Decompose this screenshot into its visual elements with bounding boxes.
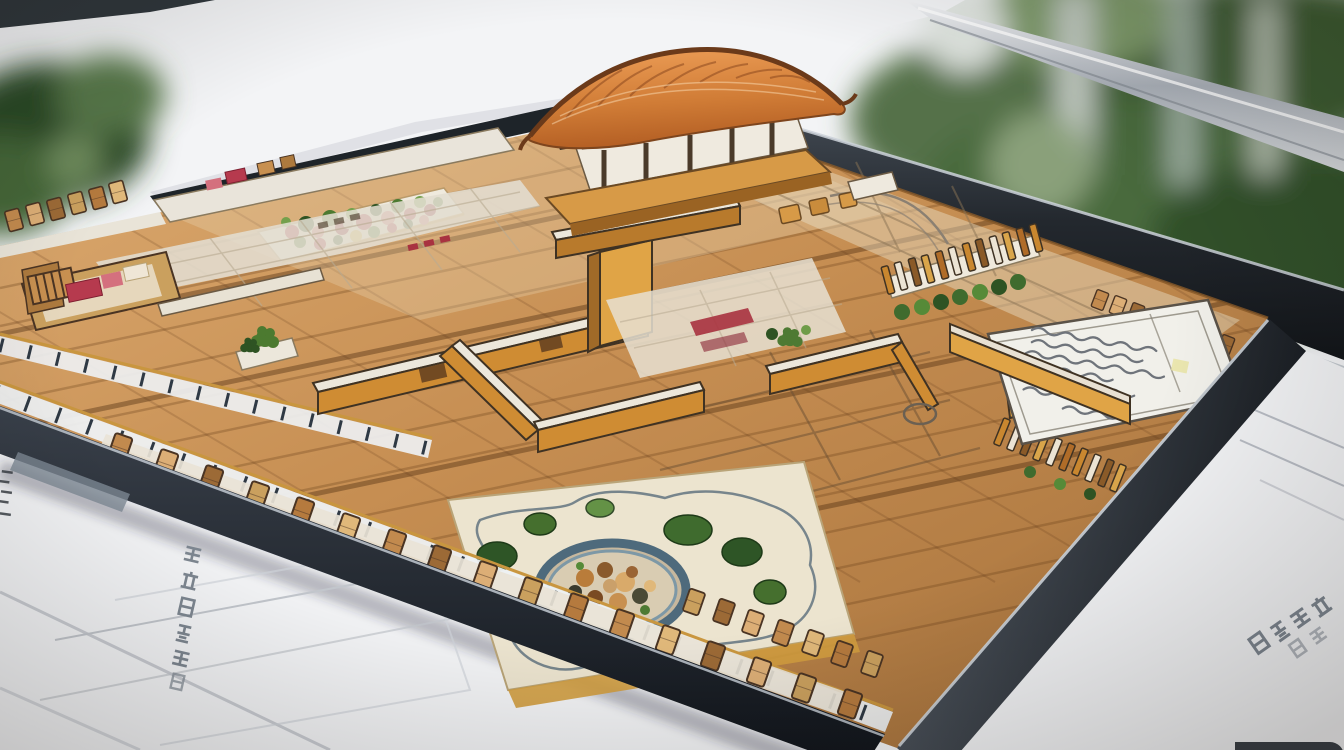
photo	[0, 0, 1344, 750]
vignette	[0, 0, 1344, 750]
